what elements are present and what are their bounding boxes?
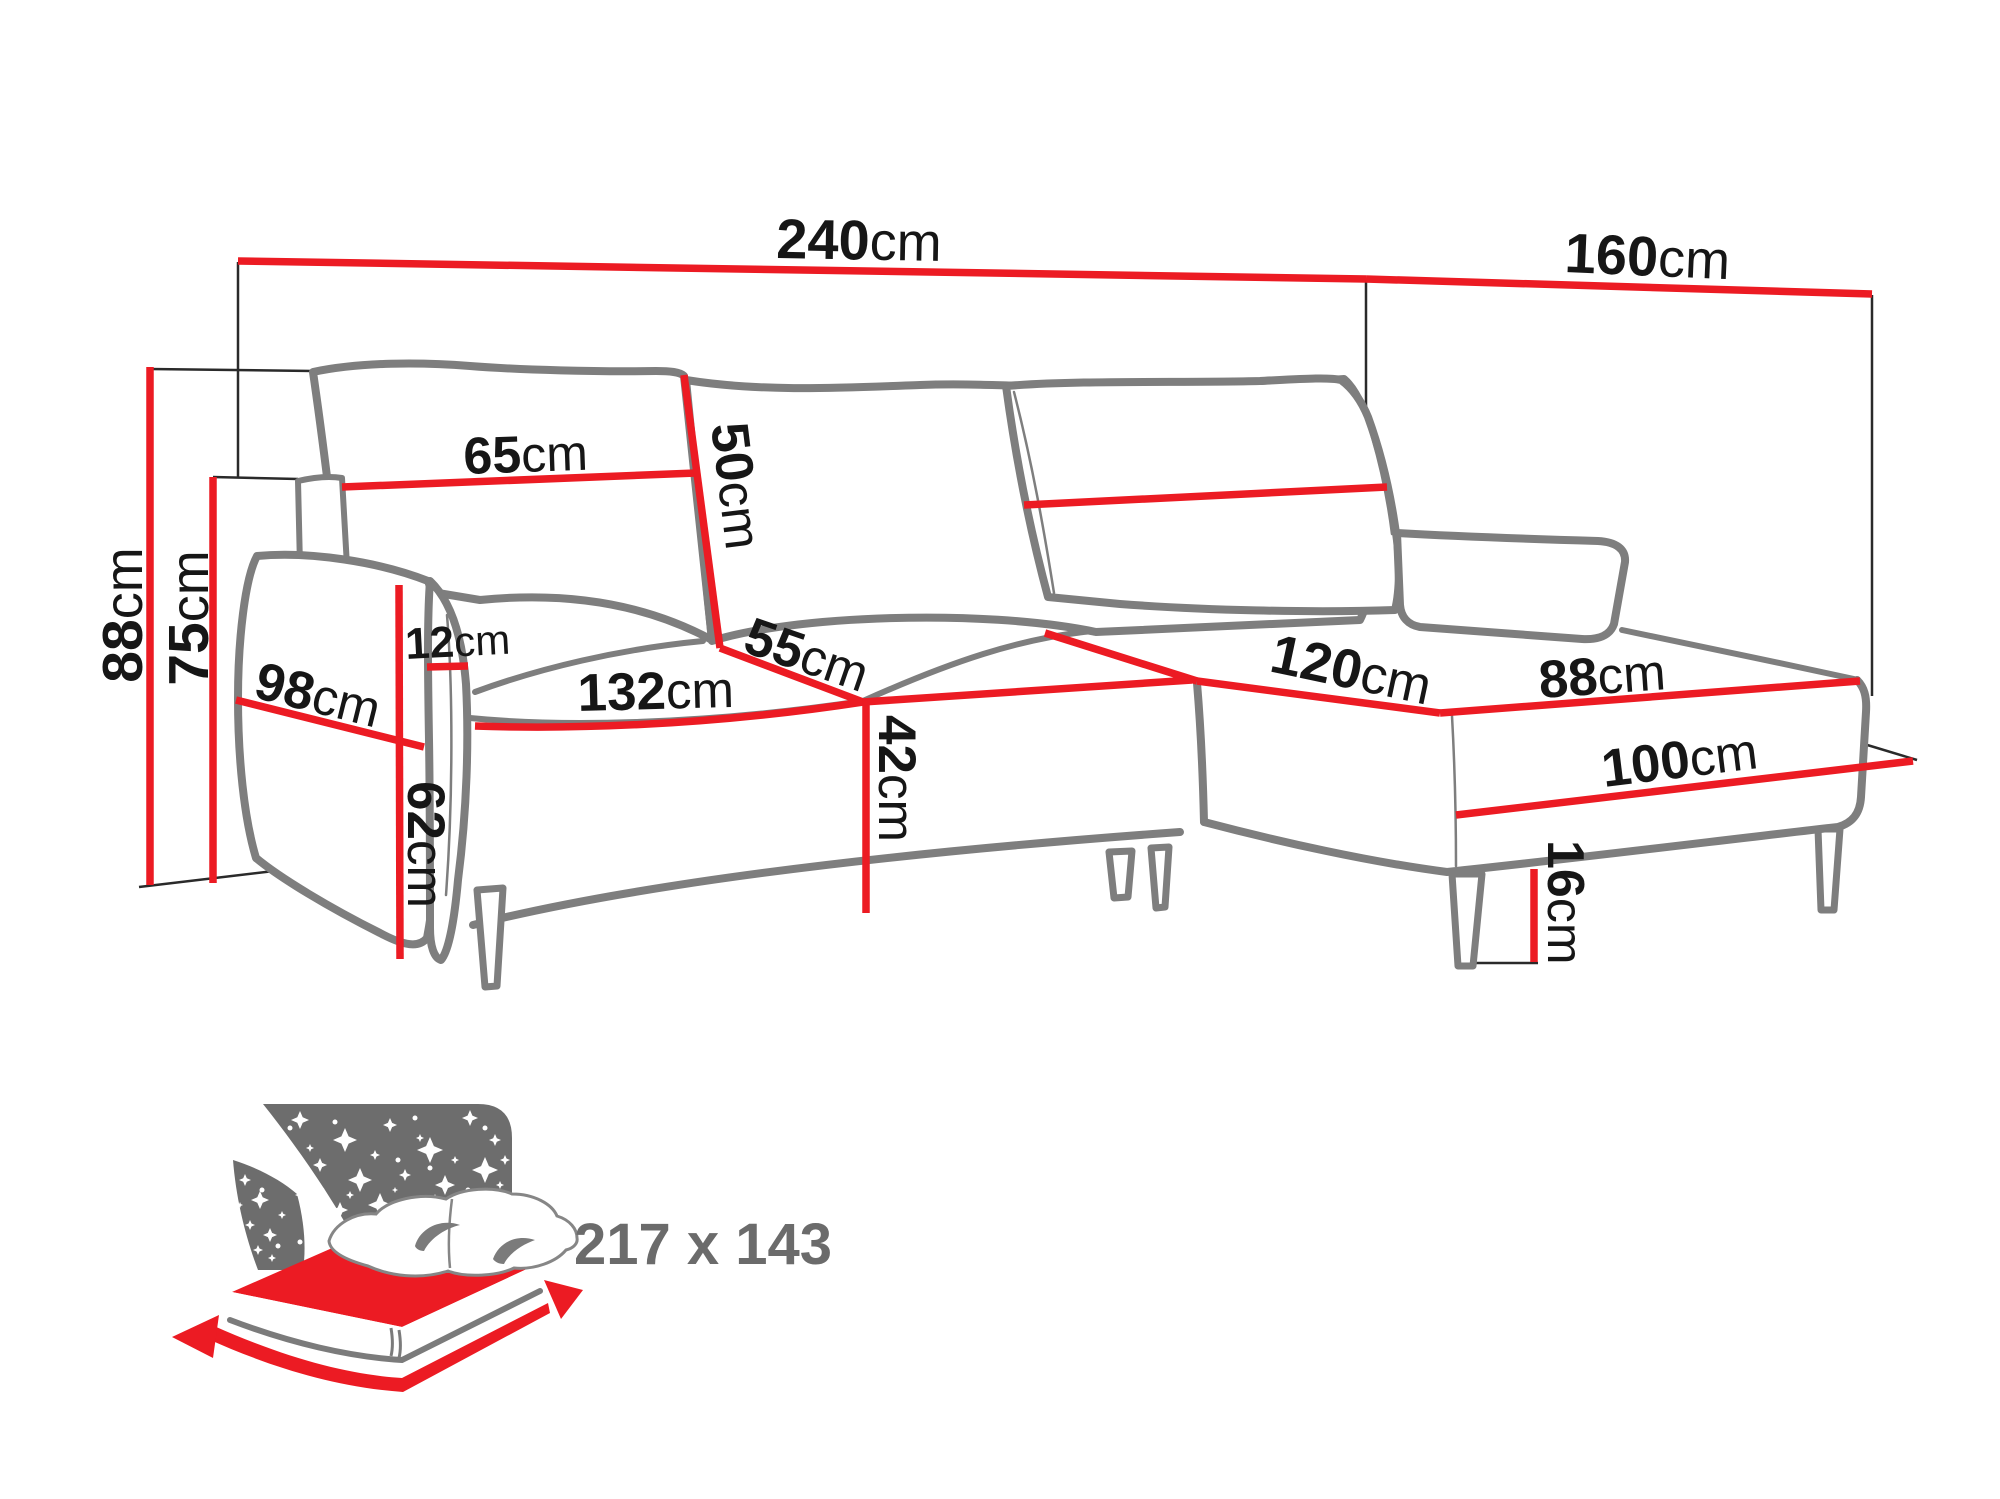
svg-text:16cm: 16cm (1536, 840, 1594, 965)
svg-text:217 x 143: 217 x 143 (574, 1212, 832, 1277)
svg-text:65cm: 65cm (462, 424, 588, 486)
svg-text:62cm: 62cm (396, 781, 455, 908)
svg-text:12cm: 12cm (404, 615, 511, 669)
svg-text:88cm: 88cm (91, 547, 155, 682)
svg-text:88cm: 88cm (1537, 642, 1668, 710)
svg-text:160cm: 160cm (1563, 221, 1731, 291)
svg-text:240cm: 240cm (776, 207, 942, 273)
svg-text:75cm: 75cm (157, 550, 221, 685)
svg-text:42cm: 42cm (867, 715, 926, 842)
svg-text:132cm: 132cm (577, 660, 735, 723)
